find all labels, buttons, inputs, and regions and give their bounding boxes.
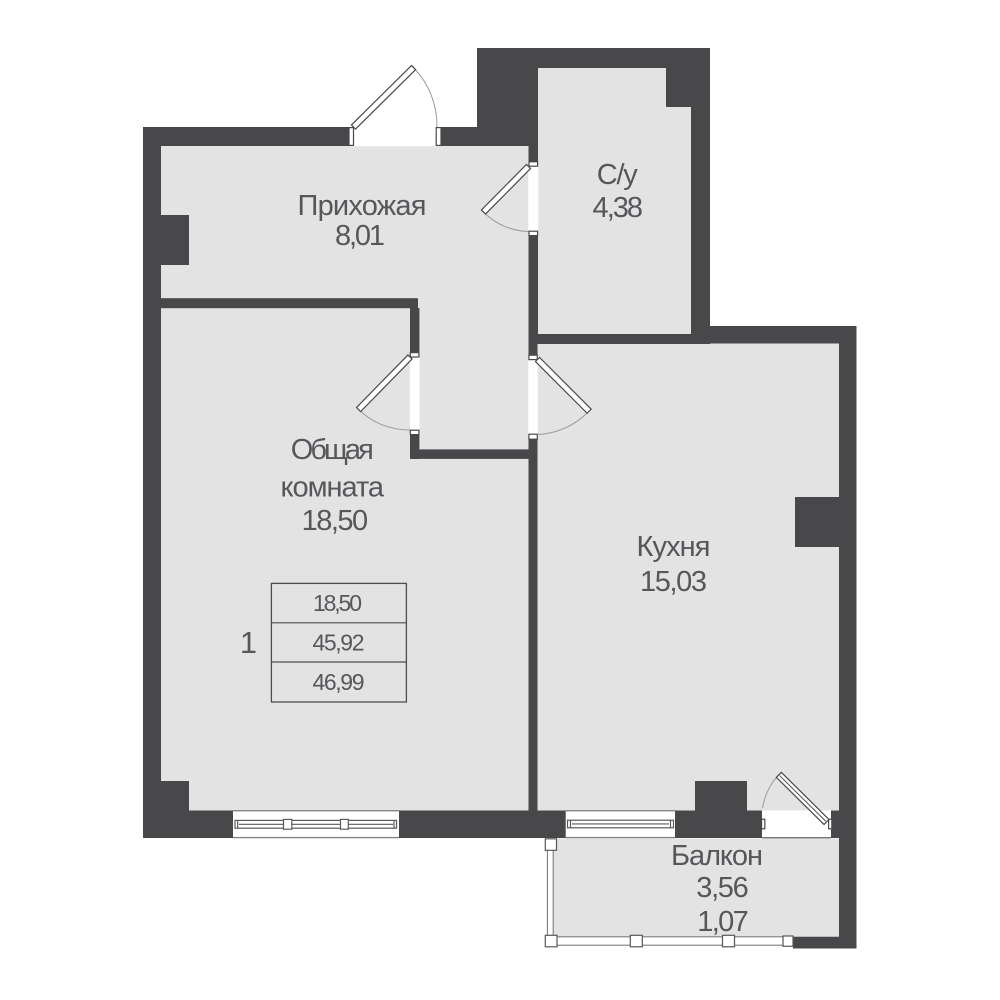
- svg-text:18,50: 18,50: [302, 505, 369, 537]
- svg-text:15,03: 15,03: [640, 566, 707, 598]
- svg-text:3,56: 3,56: [696, 872, 749, 904]
- svg-text:18,50: 18,50: [313, 590, 362, 616]
- svg-text:1,07: 1,07: [697, 906, 749, 938]
- svg-text:Кухня: Кухня: [637, 531, 711, 563]
- svg-text:1: 1: [240, 626, 257, 660]
- svg-text:Общая: Общая: [291, 434, 374, 466]
- svg-text:46,99: 46,99: [313, 669, 365, 695]
- svg-text:8,01: 8,01: [335, 220, 385, 252]
- svg-text:45,92: 45,92: [313, 630, 365, 656]
- svg-text:комната: комната: [281, 472, 385, 504]
- svg-text:С/у: С/у: [597, 159, 639, 191]
- svg-text:4,38: 4,38: [593, 192, 644, 224]
- svg-text:Прихожая: Прихожая: [298, 190, 427, 222]
- svg-text:Балкон: Балкон: [671, 840, 763, 872]
